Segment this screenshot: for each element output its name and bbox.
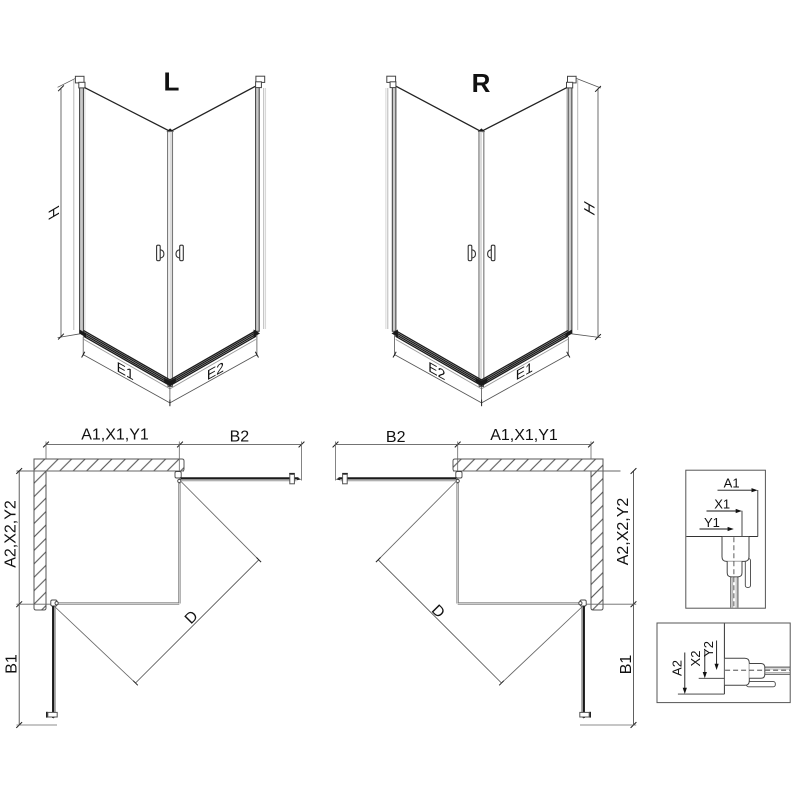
svg-text:A2,X2,Y2: A2,X2,Y2 xyxy=(615,498,632,566)
svg-text:A2: A2 xyxy=(669,660,684,676)
svg-text:R: R xyxy=(472,68,491,98)
svg-text:B1: B1 xyxy=(3,654,20,674)
svg-text:L: L xyxy=(163,66,179,96)
svg-text:A2,X2,Y2: A2,X2,Y2 xyxy=(2,500,19,568)
svg-text:A1,X1,Y1: A1,X1,Y1 xyxy=(490,427,558,444)
svg-text:B1: B1 xyxy=(618,655,635,675)
svg-text:A1: A1 xyxy=(724,476,740,491)
svg-text:Y1: Y1 xyxy=(704,515,720,530)
svg-text:B2: B2 xyxy=(230,428,250,445)
svg-text:Y2: Y2 xyxy=(701,641,716,657)
svg-text:B2: B2 xyxy=(386,429,406,446)
svg-text:X1: X1 xyxy=(714,497,730,512)
svg-text:A1,X1,Y1: A1,X1,Y1 xyxy=(81,427,149,444)
